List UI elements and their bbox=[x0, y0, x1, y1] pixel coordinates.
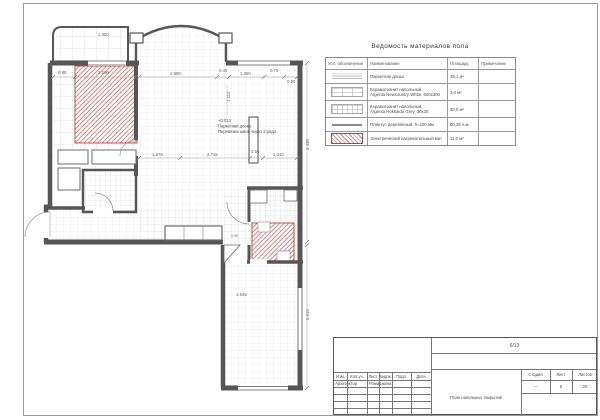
bay-pier-left bbox=[130, 33, 143, 43]
annotation-material: Паркетная доска bbox=[218, 124, 252, 129]
vent-shaft-2 bbox=[284, 190, 297, 201]
material-area: 30,0 м² bbox=[448, 101, 479, 117]
annotation-elevation: +0,014 bbox=[218, 118, 232, 123]
window-gap-right bbox=[297, 288, 304, 350]
sheet-title: План напольных покрытий bbox=[431, 390, 521, 404]
closet-b bbox=[92, 150, 136, 164]
col-izm: Изм. bbox=[334, 372, 347, 380]
doc-number: 6/13 bbox=[431, 338, 598, 353]
sheet-value: 5 bbox=[550, 380, 572, 393]
stage-value: — bbox=[521, 380, 550, 393]
materials-table: Ведомость материалов пола Усл. обозначен… bbox=[325, 40, 515, 146]
sheet-label: Лист bbox=[550, 369, 572, 380]
material-name: Паркетная доска bbox=[368, 70, 448, 83]
title-block: Изм. Кол.уч. Лист №док. Подп. Дата Архит… bbox=[333, 337, 597, 415]
col-header-note: Примечание bbox=[479, 58, 515, 69]
dim-label: 0.90 bbox=[231, 234, 238, 238]
col-dok: №док. bbox=[379, 372, 392, 380]
table-row: Керамогранит напольный, Argenta Hokkaido… bbox=[326, 101, 515, 118]
sheets-value: 20 bbox=[572, 380, 598, 393]
materials-table-title: Ведомость материалов пола bbox=[325, 40, 515, 57]
material-name: Электрический нагревательный мат bbox=[368, 132, 448, 145]
vent-shaft-1 bbox=[250, 190, 267, 203]
col-header-area: Площадь bbox=[448, 58, 479, 69]
open-door-leaf bbox=[224, 245, 240, 263]
dim-label: 1.545 bbox=[236, 292, 247, 297]
dim-label: 2.715 bbox=[207, 152, 218, 157]
material-name: Керамогранит напольный, Argenta Newcount… bbox=[368, 84, 448, 100]
entrance-gap bbox=[42, 212, 50, 238]
materials-table-header: Усл. обозначение Наименование Площадь Пр… bbox=[326, 58, 515, 70]
material-name: Плинтус деревянный, h=100 мм bbox=[368, 118, 448, 131]
table-row: Паркетная доска 48,1 м² bbox=[326, 70, 515, 84]
dim-label: 2.260 bbox=[98, 70, 109, 75]
material-name: Керамогранит напольный, Argenta Hokkaido… bbox=[368, 101, 448, 117]
table-row: Керамогранит напольный, Argenta Newcount… bbox=[326, 84, 515, 101]
stage-label: Стадия bbox=[521, 369, 550, 380]
wing-room-floor bbox=[224, 262, 297, 388]
col-header-name: Наименование bbox=[368, 58, 448, 69]
dim-label: 1.575 bbox=[152, 152, 163, 157]
col-data: Дата bbox=[411, 372, 431, 380]
role-label: Архитектор bbox=[334, 380, 368, 387]
dim-label: 1.350 bbox=[240, 71, 251, 76]
dim-label: 4.430 bbox=[305, 139, 310, 150]
bathroom1-floor bbox=[85, 172, 135, 211]
red-hatch-icon bbox=[331, 133, 363, 144]
material-note bbox=[479, 101, 515, 117]
parquet-hatch-icon bbox=[332, 73, 362, 81]
col-koluch: Кол.уч. bbox=[347, 372, 367, 380]
col-list: Лист bbox=[367, 372, 379, 380]
material-area: 11,0 м² bbox=[448, 132, 479, 145]
col-podp: Подп. bbox=[392, 372, 411, 380]
material-note bbox=[479, 132, 515, 145]
dim-label: 0.75 bbox=[270, 68, 279, 73]
storage-room bbox=[58, 168, 80, 190]
tile-30x30-icon bbox=[331, 104, 363, 114]
wardrobe bbox=[165, 226, 222, 240]
material-note bbox=[479, 118, 515, 131]
dim-label: 5.615 bbox=[305, 309, 310, 320]
material-note bbox=[479, 84, 515, 100]
material-area: 3,0 м² bbox=[448, 84, 479, 100]
dim-label: 0.45 bbox=[219, 68, 228, 73]
drawing-sheet: { "sheet": { "background": "#ffffff", "f… bbox=[0, 0, 600, 420]
dim-label: 0.80 bbox=[58, 70, 67, 75]
dim-label: 2.990 bbox=[170, 71, 181, 76]
closet-a bbox=[58, 150, 88, 164]
plinth-line-icon bbox=[332, 124, 362, 126]
role-name: Ромашкина bbox=[368, 380, 412, 387]
dim-label: 1.310 bbox=[273, 152, 284, 157]
bathroom1-door-gap bbox=[93, 209, 113, 215]
annotation-note: Перевязка швов через 3 ряда bbox=[218, 129, 277, 134]
table-row: Электрический нагревательный мат 11,0 м² bbox=[326, 132, 515, 145]
tile-600x300-icon bbox=[331, 87, 363, 97]
materials-table-grid: Усл. обозначение Наименование Площадь Пр… bbox=[325, 57, 516, 146]
bathroom2-door-gap bbox=[250, 259, 267, 265]
bay-pier-right bbox=[219, 33, 232, 43]
heated-mat-area-1 bbox=[75, 66, 137, 143]
material-area: 80,25 п.м. bbox=[448, 118, 479, 131]
shaft-notch bbox=[258, 222, 270, 232]
dim-label: 0.50 bbox=[287, 79, 296, 84]
dim-label: 0.50 bbox=[251, 149, 260, 154]
col-header-symbol: Усл. обозначение bbox=[326, 58, 368, 69]
sheets-label: Листов bbox=[572, 369, 598, 380]
dim-label: 1.112 bbox=[226, 91, 231, 102]
dim-label: 1.350 bbox=[98, 32, 109, 37]
table-row: Плинтус деревянный, h=100 мм 80,25 п.м. bbox=[326, 118, 515, 132]
balcony-floor bbox=[56, 29, 128, 62]
material-note bbox=[479, 70, 515, 83]
material-area: 48,1 м² bbox=[448, 70, 479, 83]
